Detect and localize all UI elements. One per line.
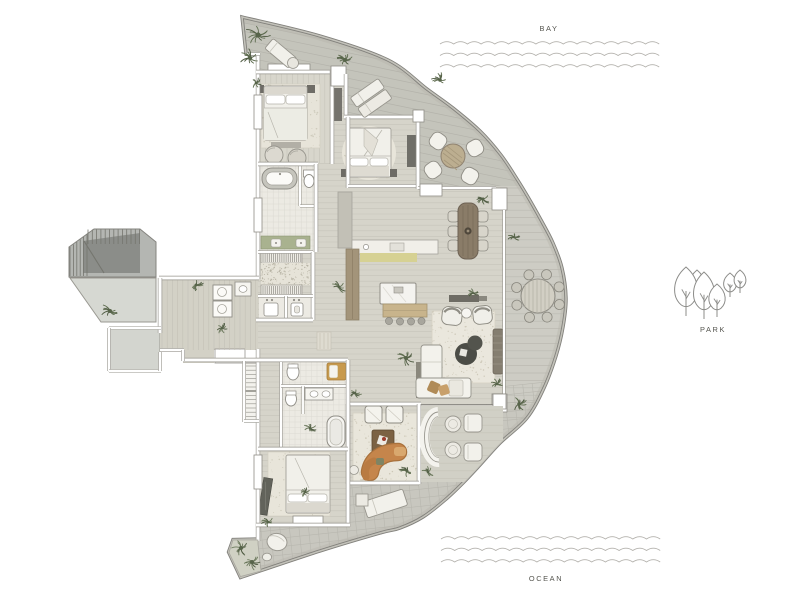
svg-text:OCEAN: OCEAN: [529, 574, 563, 583]
svg-text:BAY: BAY: [539, 24, 558, 33]
svg-text:PARK: PARK: [700, 325, 726, 334]
